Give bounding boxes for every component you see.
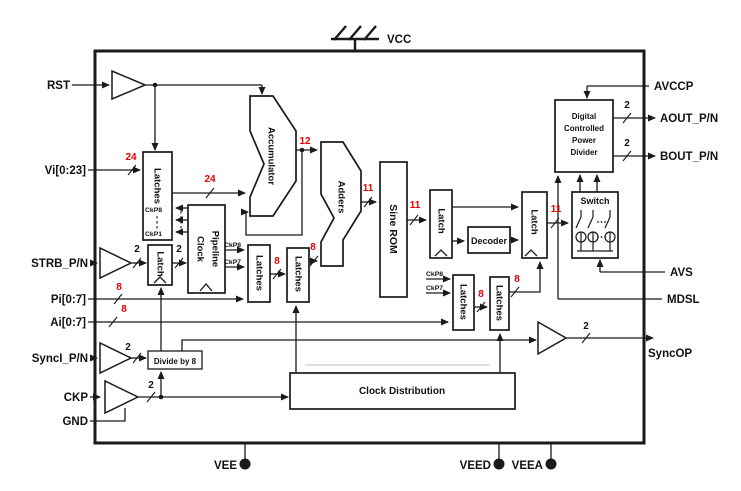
bus-11: 11	[363, 183, 374, 194]
bus-2: 2	[176, 244, 182, 255]
ckp-buffer-icon	[105, 381, 138, 413]
bus-8: 8	[116, 282, 122, 293]
pin-label-veed: VEED	[460, 460, 491, 472]
ckp1-tap-label: CkP1	[145, 231, 162, 238]
bus-2: 2	[148, 380, 154, 391]
pin-label-vcc: VCC	[387, 34, 411, 46]
vcc-power-icon	[331, 26, 379, 51]
clock-distribution-label: Clock Distribution	[359, 386, 445, 397]
pin-label-vee: VEE	[214, 460, 237, 472]
bus-24: 24	[204, 174, 216, 185]
veed-pad-icon	[494, 459, 505, 470]
syncop-buffer-icon	[538, 322, 566, 354]
ckp8-tap-label: CkP8	[224, 242, 241, 249]
rom-latch-label: Latch	[436, 208, 447, 234]
supply-pads	[240, 459, 557, 470]
pin-label-pi: Pi[0:7]	[51, 294, 86, 306]
bus-2: 2	[125, 342, 131, 353]
pin-label-avs: AVS	[670, 267, 693, 279]
dds-block-diagram: VCC	[0, 0, 741, 491]
strb-buffer-icon	[100, 248, 131, 278]
phase-latches-1-label: Latches	[254, 255, 265, 291]
amp-latches-2-label: Latches	[494, 285, 505, 321]
ckp8-tap-label: CkP8	[426, 271, 443, 278]
bus-11: 11	[410, 200, 421, 211]
pin-label-strb: STRB_P/N	[31, 258, 88, 270]
pin-label-vi: Vi[0:23]	[45, 165, 87, 177]
amp-latches-1-label: Latches	[458, 284, 469, 320]
pin-label-bout: BOUT_P/N	[660, 151, 718, 163]
pin-label-aout: AOUT_P/N	[660, 113, 718, 125]
output-latch-label: Latch	[529, 209, 540, 235]
pin-label-rst: RST	[47, 80, 70, 92]
vee-pad-icon	[240, 459, 251, 470]
diagram-canvas: VCC	[0, 0, 741, 491]
rst-buffer-icon	[112, 71, 145, 99]
pin-label-ckp: CKP	[64, 392, 89, 404]
pin-label-mdsl: MDSL	[667, 294, 700, 306]
dcpd-label-3: Power	[572, 136, 596, 145]
bus-8: 8	[310, 242, 316, 253]
bus-2: 2	[624, 138, 630, 149]
bus-2: 2	[134, 244, 140, 255]
bus-2: 2	[583, 321, 589, 332]
bus-24: 24	[125, 152, 137, 163]
bus-11: 11	[551, 204, 562, 215]
dcpd-label-2: Controlled	[564, 124, 604, 133]
vi-latches-label: Latches	[152, 168, 163, 204]
ckp7-tap-label: CkP7	[426, 285, 443, 292]
decoder-label: Decoder	[471, 236, 508, 246]
bus-12: 12	[299, 136, 311, 147]
strb-latch-label: Latch	[155, 251, 166, 277]
blocks: Latches CkP8 CkP1 Accumulator Adders Sin…	[143, 96, 618, 409]
bus-8: 8	[274, 256, 280, 267]
veea-pad-icon	[546, 459, 557, 470]
bus-2: 2	[624, 100, 630, 111]
ckp8-tap-label: CkP8	[145, 207, 162, 214]
phase-latches-2-label: Latches	[293, 256, 304, 292]
pin-label-ai: Ai[0:7]	[50, 317, 86, 329]
sine-rom-label: Sine ROM	[387, 204, 399, 254]
bus-8: 8	[478, 289, 484, 300]
pin-label-gnd: GND	[62, 416, 88, 428]
pin-labels: RST Vi[0:23] STRB_P/N Pi[0:7] Ai[0:7] Sy…	[31, 80, 718, 472]
pin-label-synci: SyncI_P/N	[32, 353, 88, 365]
ckp7-tap-label: CkP7	[224, 259, 241, 266]
accumulator-label: Accumulator	[266, 127, 277, 185]
dcpd-label-1: Digital	[572, 112, 596, 121]
dcpd-label-4: Divider	[570, 148, 597, 157]
bus-8: 8	[121, 304, 127, 315]
pipeline-clock-label: Clock	[195, 236, 206, 263]
bus-8: 8	[514, 274, 520, 285]
pipeline-label: Pipeline	[210, 231, 221, 267]
adders-label: Adders	[336, 181, 347, 214]
pin-label-veea: VEEA	[512, 460, 543, 472]
switch-label: Switch	[580, 196, 609, 206]
divide-by-8-label: Divide by 8	[154, 357, 197, 366]
pin-label-syncop: SyncOP	[648, 348, 692, 360]
pin-label-avccp: AVCCP	[654, 81, 694, 93]
